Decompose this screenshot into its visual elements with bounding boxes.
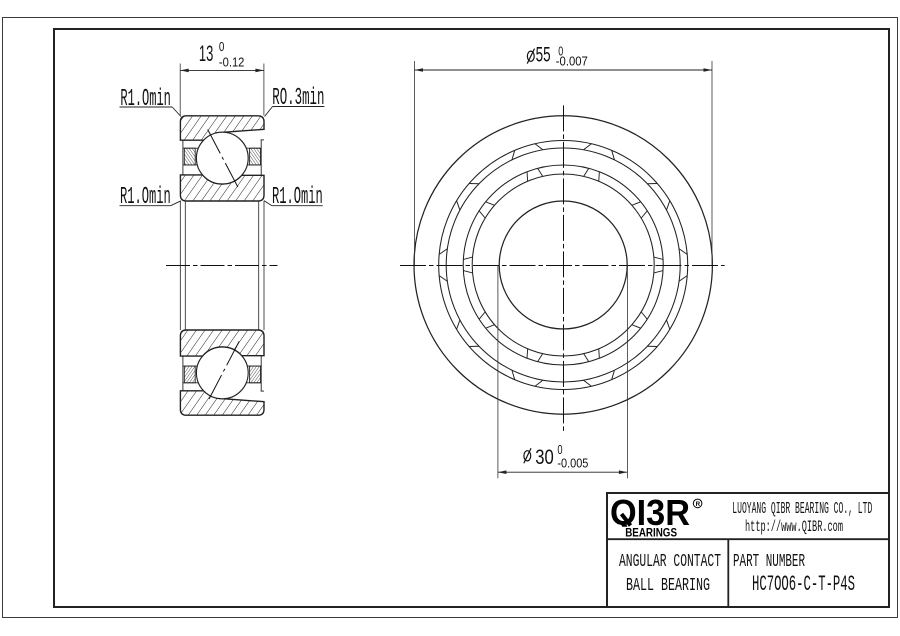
svg-text:-0.005: -0.005 — [557, 456, 588, 471]
svg-text:30: 30 — [535, 446, 554, 469]
svg-text:0: 0 — [219, 39, 225, 54]
svg-text:13: 13 — [199, 41, 213, 66]
svg-text:PART NUMBER: PART NUMBER — [733, 550, 805, 572]
svg-text:ANGULAR CONTACT: ANGULAR CONTACT — [619, 550, 721, 572]
svg-text:55: 55 — [536, 44, 551, 67]
svg-text:HC7OO6-C-T-P4S: HC7OO6-C-T-P4S — [752, 572, 855, 597]
svg-text:R: R — [696, 501, 701, 508]
svg-text:RO.3min: RO.3min — [272, 85, 324, 112]
svg-text:R1.Omin: R1.Omin — [120, 184, 171, 211]
svg-text:-0.12: -0.12 — [219, 55, 245, 70]
svg-text:BALL BEARING: BALL BEARING — [626, 574, 710, 596]
svg-text:LUOYANG QIBR BEARING CO., LTD: LUOYANG QIBR BEARING CO., LTD — [732, 500, 872, 519]
svg-text:R1.Omin: R1.Omin — [272, 184, 323, 211]
svg-text:http://www.QIBR.com: http://www.QIBR.com — [745, 518, 843, 536]
svg-text:R1.Omin: R1.Omin — [120, 86, 171, 113]
svg-text:BEARINGS: BEARINGS — [625, 528, 677, 540]
svg-text:-0.007: -0.007 — [556, 54, 588, 69]
